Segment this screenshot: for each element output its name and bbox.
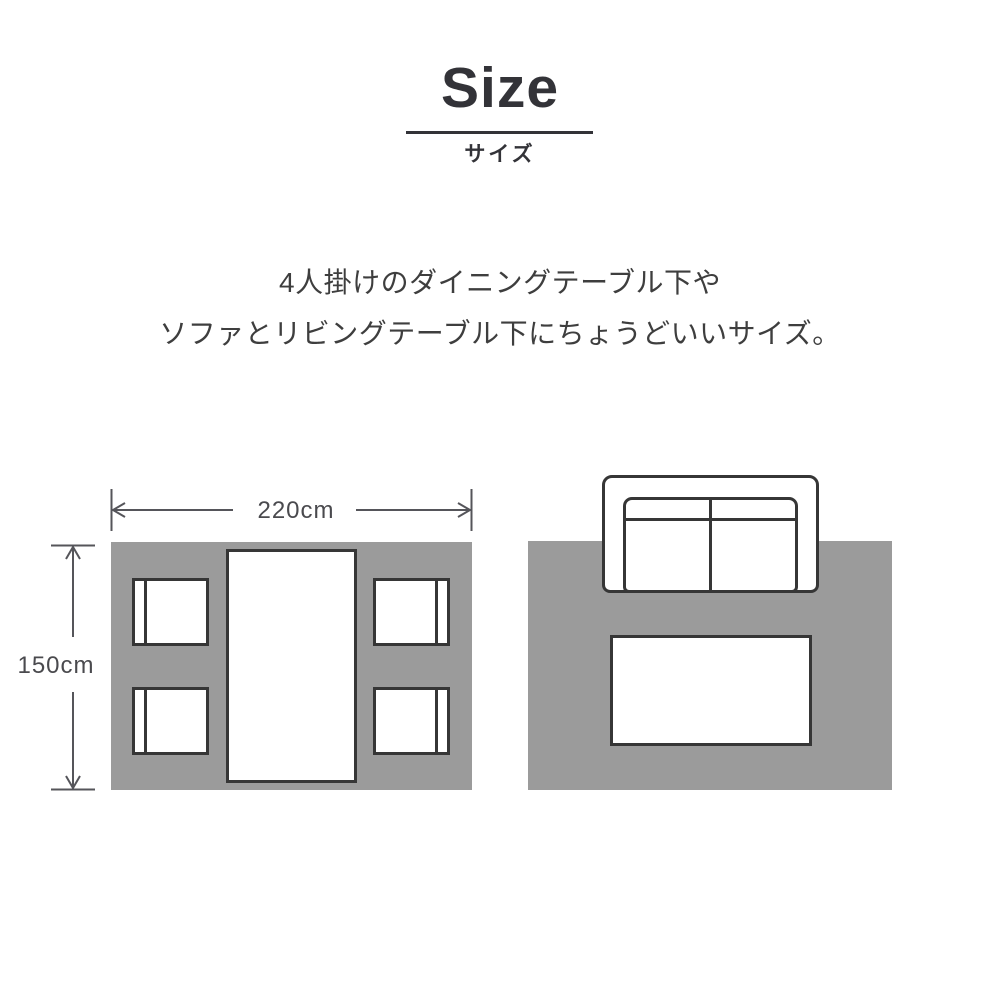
chair-backrest-line	[144, 690, 147, 752]
dining-chair-bottom-right-icon	[373, 687, 450, 755]
dimension-arrows	[0, 0, 1000, 1000]
rug-width-label: 220cm	[257, 499, 334, 523]
chair-backrest-line	[435, 581, 438, 643]
chair-backrest-line	[435, 690, 438, 752]
dining-chair-bottom-left-icon	[132, 687, 209, 755]
dining-chair-top-right-icon	[373, 578, 450, 646]
diagram-layer: 220cm 150cm	[0, 0, 1000, 1000]
sofa-seat-divider-line	[709, 500, 712, 590]
dining-chair-top-left-icon	[132, 578, 209, 646]
rug-height-label: 150cm	[17, 654, 94, 678]
dining-table-icon	[226, 549, 357, 783]
sofa-icon	[602, 475, 819, 593]
chair-backrest-line	[144, 581, 147, 643]
living-table-icon	[610, 635, 812, 746]
sofa-seats	[623, 497, 798, 593]
size-infographic: Size サイズ 4人掛けのダイニングテーブル下や ソファとリビングテーブル下に…	[0, 0, 1000, 1000]
